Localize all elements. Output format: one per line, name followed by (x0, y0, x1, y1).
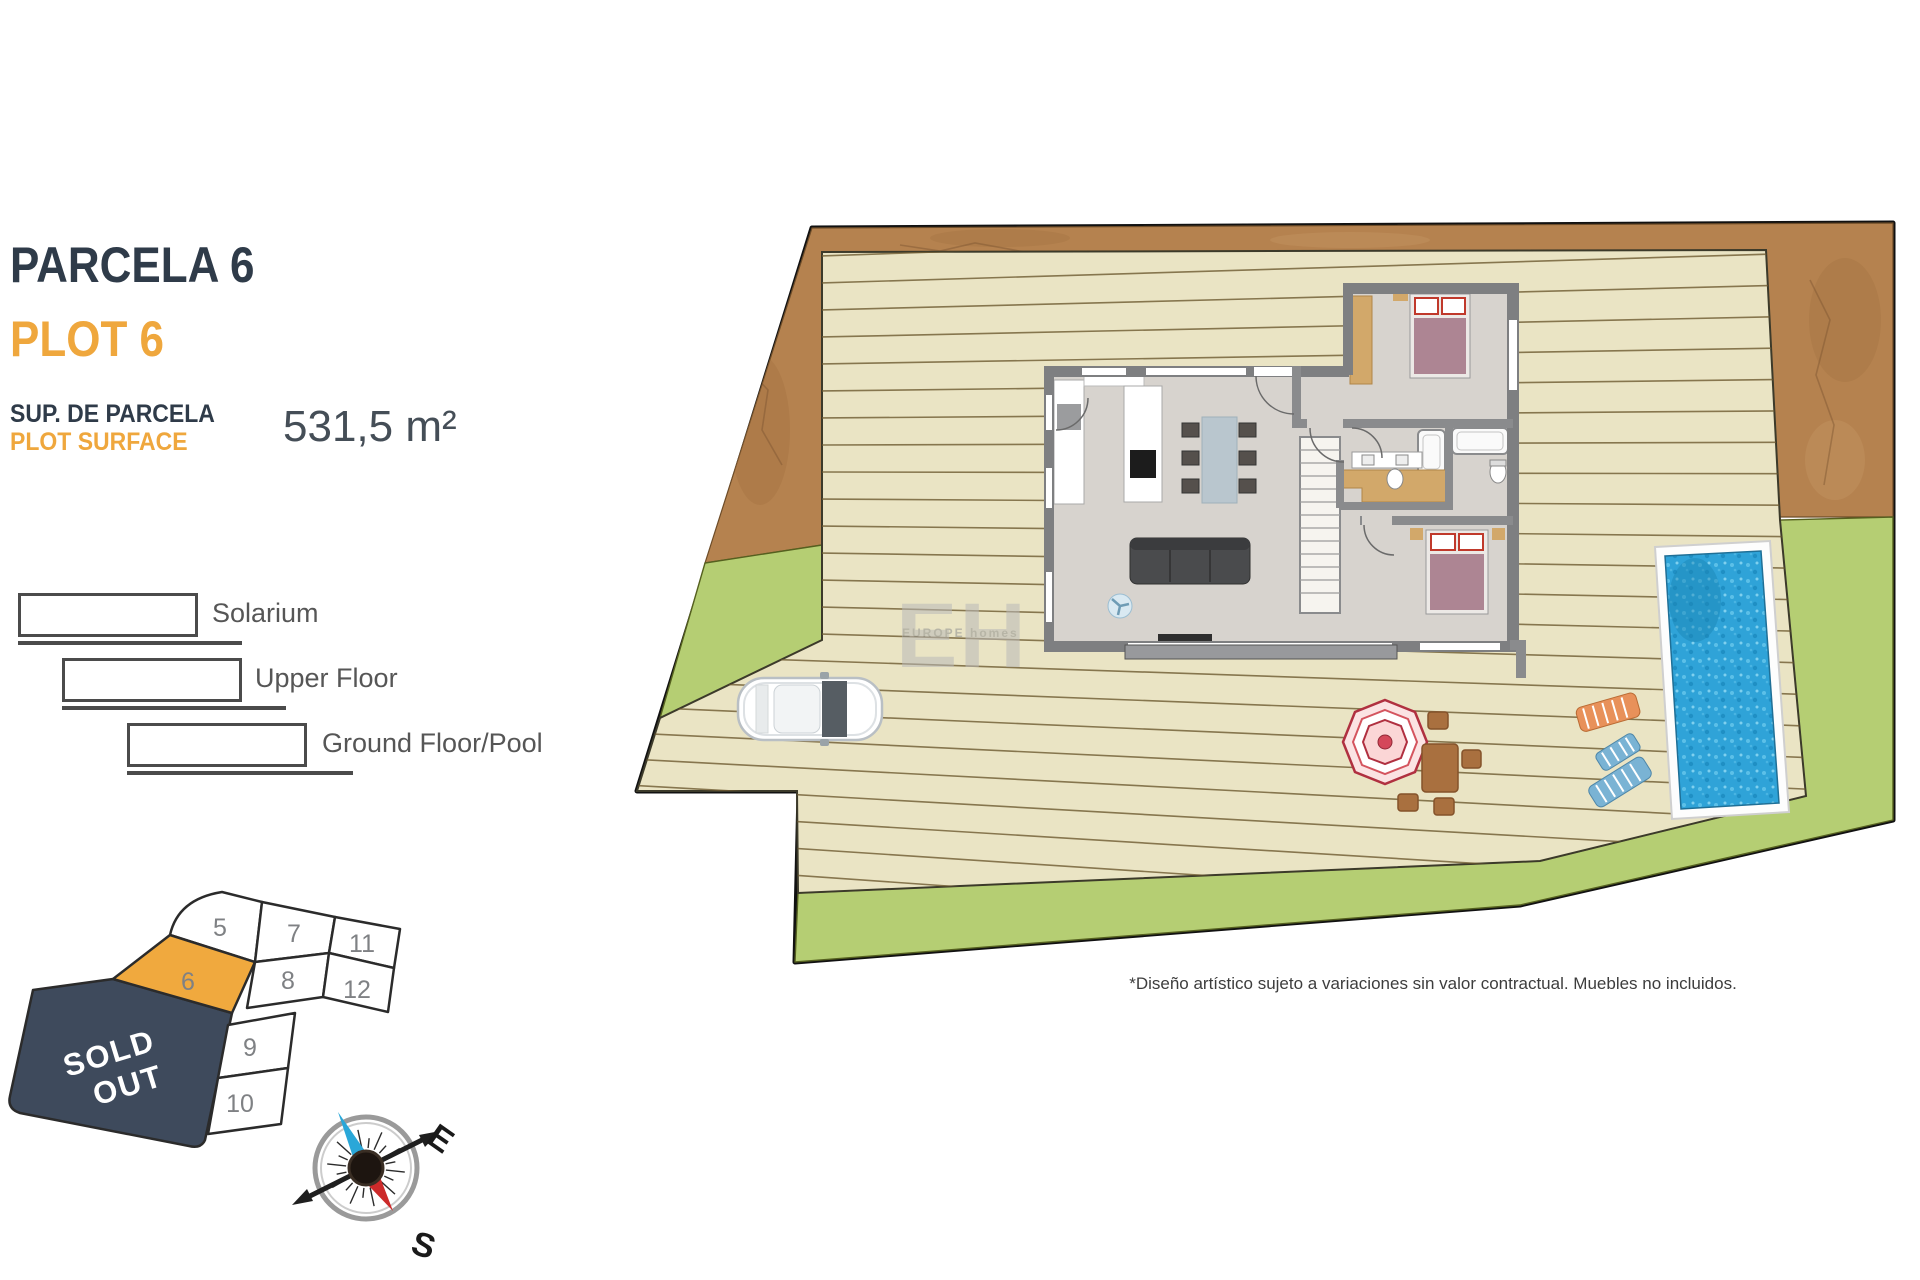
legend-box-upper-floor-shadow (62, 706, 286, 710)
sliding-door-sill (1125, 645, 1397, 659)
minimap-label-10: 10 (226, 1090, 254, 1118)
tv-unit (1158, 634, 1212, 641)
sink-1 (1362, 455, 1374, 465)
staircase (1300, 437, 1340, 613)
bedroom2-nightstand-right (1492, 528, 1505, 540)
compass-west-arrowhead (292, 1189, 313, 1205)
legend-label-ground-floor: Ground Floor/Pool (322, 728, 543, 759)
car-mirror-top (820, 672, 829, 679)
outdoor-table (1422, 744, 1458, 792)
toilet-2-tank (1490, 460, 1506, 466)
legend-box-solarium (18, 593, 198, 637)
parasol (1343, 700, 1427, 784)
minimap-label-6: 6 (181, 968, 195, 996)
minimap-label-5: 5 (213, 914, 227, 942)
surface-value: 531,5 m² (283, 402, 457, 452)
minimap-label-8: 8 (281, 967, 295, 995)
page: PARCELA 6 PLOT 6 SUP. DE PARCELA PLOT SU… (0, 0, 1920, 1280)
car-roof (774, 685, 820, 733)
minimap-label-12: 12 (343, 976, 371, 1004)
bedroom2-nightstand-left (1410, 528, 1423, 540)
legend-box-upper-floor (62, 658, 242, 702)
minimap-label-9: 9 (243, 1034, 257, 1062)
legend-box-solarium-shadow (18, 641, 242, 645)
sofa (1130, 538, 1250, 584)
disclaimer-text: *Diseño artístico sujeto a variaciones s… (1083, 974, 1783, 994)
watermark: EH EUROPE homes (896, 592, 1056, 692)
bedroom1-bed (1410, 294, 1470, 378)
legend-box-ground-floor (127, 723, 307, 767)
car-windshield (822, 681, 847, 737)
kitchen-counter (1054, 380, 1084, 504)
dining-table (1202, 417, 1237, 503)
kitchen-sink (1057, 404, 1081, 430)
pool-deep-end-shade (1669, 558, 1721, 642)
surface-label-es: SUP. DE PARCELA (10, 400, 215, 429)
compass-hub (349, 1151, 383, 1185)
legend-label-upper-floor: Upper Floor (255, 663, 398, 694)
watermark-brand-text: EUROPE homes (902, 626, 1019, 640)
car-mirror-bottom (820, 739, 829, 746)
kitchen-island (1124, 386, 1162, 502)
minimap-label-11: 11 (349, 930, 375, 958)
plot-title-en: PLOT 6 (10, 312, 164, 366)
legend-box-ground-floor-shadow (127, 771, 353, 775)
sink-2 (1396, 455, 1408, 465)
plot-title-es: PARCELA 6 (10, 238, 254, 292)
minimap-label-7: 7 (287, 920, 301, 948)
legend-label-solarium: Solarium (212, 598, 319, 629)
toilet-1 (1387, 469, 1403, 489)
surface-label-en: PLOT SURFACE (10, 428, 188, 457)
compass-rose: E S (290, 1090, 470, 1275)
bedroom2-bed (1426, 530, 1488, 614)
site-plan (530, 150, 1920, 990)
car-rear-window (756, 685, 768, 733)
compass-east-label: E (420, 1117, 460, 1161)
cooktop (1130, 450, 1156, 478)
car (738, 672, 882, 746)
compass-south-label: S (407, 1224, 440, 1267)
bedroom1-wardrobe (1350, 296, 1372, 384)
ceiling-fan-icon (1108, 594, 1132, 618)
swimming-pool (1655, 541, 1789, 819)
